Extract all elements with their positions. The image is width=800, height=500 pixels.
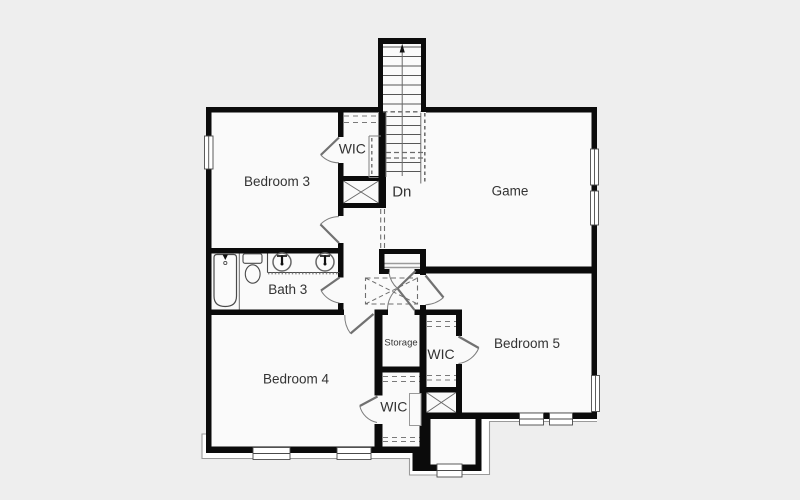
svg-text:WIC: WIC xyxy=(380,399,407,415)
svg-text:Bedroom 5: Bedroom 5 xyxy=(494,336,560,351)
svg-text:WIC: WIC xyxy=(339,141,366,157)
svg-text:Bath 3: Bath 3 xyxy=(268,282,307,297)
svg-text:Game: Game xyxy=(492,184,529,199)
svg-text:Bedroom 4: Bedroom 4 xyxy=(263,372,330,387)
svg-text:Storage: Storage xyxy=(384,338,417,349)
svg-text:WIC: WIC xyxy=(427,346,454,362)
svg-text:Dn: Dn xyxy=(392,184,411,201)
svg-text:Bedroom 3: Bedroom 3 xyxy=(244,174,310,189)
